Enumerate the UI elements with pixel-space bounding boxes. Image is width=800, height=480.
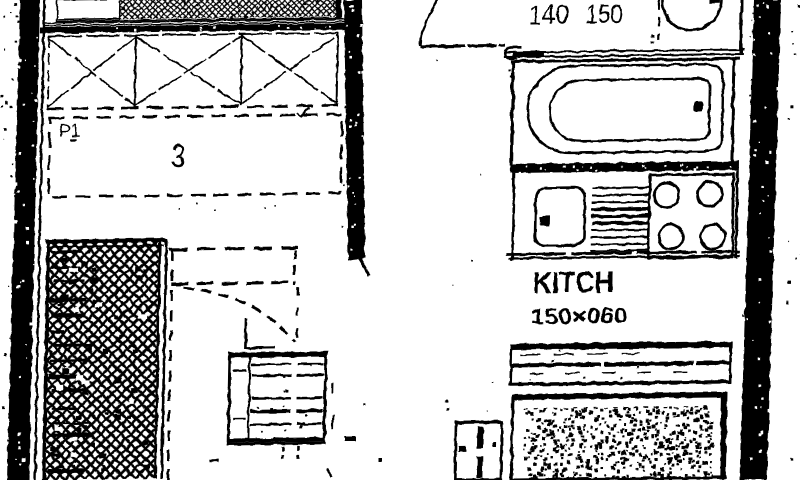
svg-text:140: 140	[528, 0, 569, 30]
svg-text:3: 3	[170, 138, 186, 174]
svg-text:150×060: 150×060	[531, 303, 628, 329]
svg-text:P1: P1	[59, 121, 81, 142]
svg-text:KITCH: KITCH	[532, 266, 614, 300]
svg-text:150: 150	[585, 0, 623, 29]
